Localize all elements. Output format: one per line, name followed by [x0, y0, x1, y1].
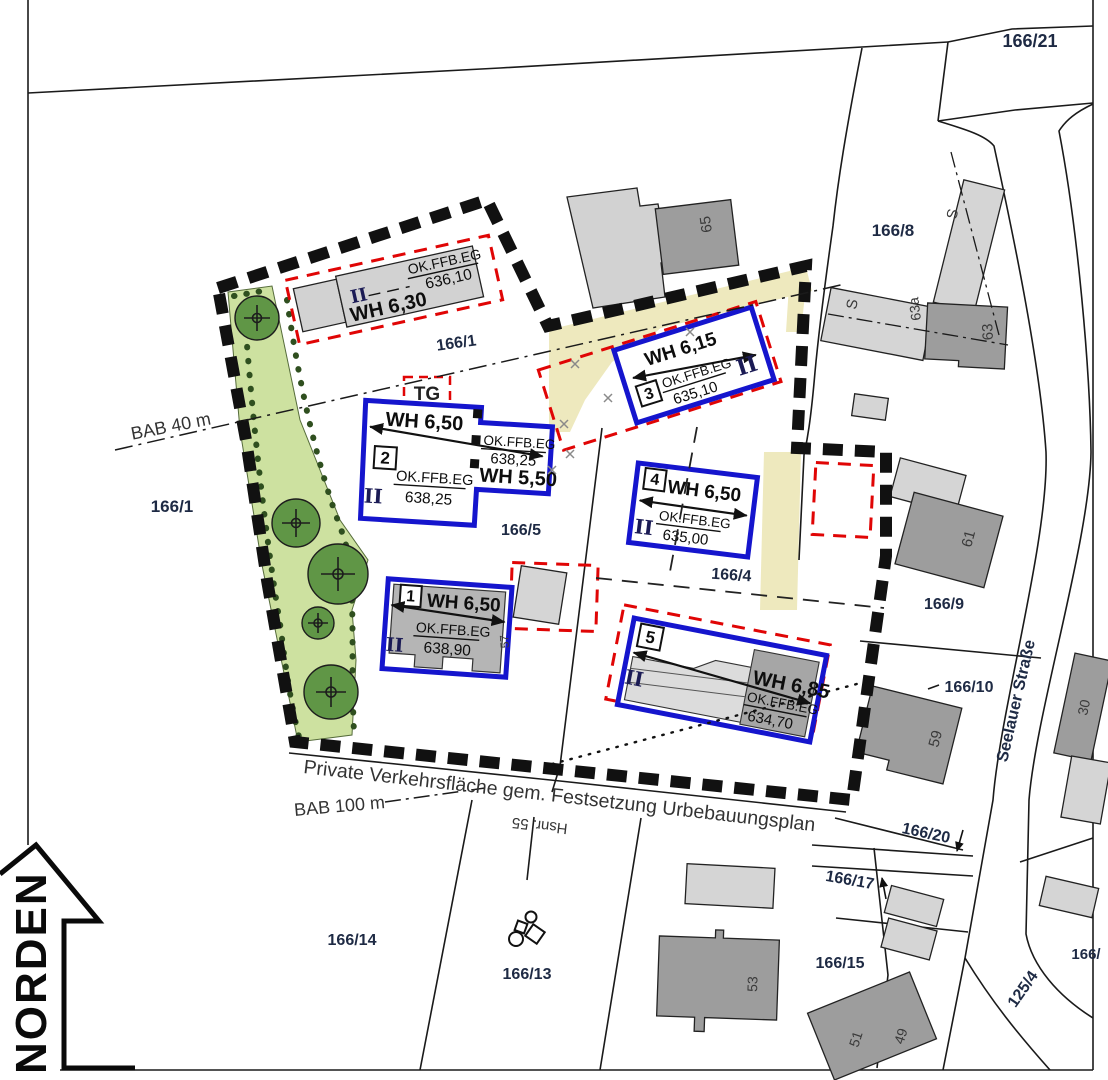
- parcel-label-166-15: 166/15: [816, 955, 865, 972]
- b1-storeys: II: [385, 634, 404, 657]
- building-right-edge: [1039, 876, 1098, 917]
- b4-storeys: II: [633, 514, 655, 540]
- arrow-166-17: [882, 878, 886, 899]
- parcel-label-166-1-inner: 166/1: [435, 332, 477, 354]
- tree-icon: [308, 544, 368, 604]
- tree-icon: [272, 499, 320, 547]
- b1-number: 1: [406, 588, 416, 606]
- site-plan-page: II OK.FFB.EG 636,10 WH 6,30 TG WH 6,50 O…: [0, 0, 1108, 1080]
- parcel-label-166-8: 166/8: [872, 221, 915, 240]
- parcel-label-166-13: 166/13: [503, 966, 552, 983]
- parcel-label-166-20: 166/20: [900, 820, 952, 847]
- small-outbuilding: [852, 394, 889, 421]
- parcel-label-166-4: 166/4: [711, 566, 752, 586]
- building-4-group: 4 WH 6,50 OK.FFB.EG 635,00 II: [629, 463, 758, 557]
- house-number-63a: 63a: [905, 296, 924, 321]
- bab40-label: BAB 40 m: [129, 409, 212, 444]
- b2-level-value: 638,25: [404, 489, 452, 509]
- parcel-label-166-17: 166/17: [824, 868, 875, 893]
- parcel-label-166-1-outer: 166/1: [151, 497, 194, 516]
- street-label-125-4: 125/4: [1005, 968, 1042, 1011]
- building-51-49: [808, 972, 937, 1080]
- building-5-group: 5 II WH 6,85 OK.FFB.EG 634,70: [617, 618, 836, 744]
- house-number-63: 63: [979, 323, 997, 341]
- small-grey-in-envelope: [513, 566, 567, 625]
- parcel-label-166-9: 166/9: [924, 596, 964, 613]
- building-1-group: 1 WH 6,50 OK.FFB.EG 638,90 II: [382, 579, 512, 677]
- parcel-label-166-cut: 166/: [1071, 946, 1101, 963]
- bab100-label: BAB 100 m: [293, 792, 385, 820]
- street-label-seelauer: Seelauer Straße: [993, 638, 1039, 764]
- building-53: [656, 928, 779, 1034]
- house-number-57: 57: [497, 634, 512, 649]
- parcel-label-166-10: 166/10: [945, 679, 994, 696]
- parcel-label-166-21: 166/21: [1002, 31, 1057, 51]
- tree-icon: [302, 607, 334, 639]
- house-number-53: 53: [744, 976, 761, 992]
- b2-number: 2: [380, 448, 391, 468]
- parcel-label-166-14: 166/14: [328, 932, 377, 949]
- well-symbol-icon: [509, 912, 545, 947]
- hsnr-55-label: Hsnr. 55: [511, 814, 568, 837]
- tree-icon: [235, 296, 279, 340]
- tree-icon: [304, 665, 358, 719]
- north-arrow: NORDEN: [0, 845, 135, 1074]
- b1-level-value: 638,90: [423, 639, 472, 659]
- parcel-label-166-5: 166/5: [501, 522, 541, 539]
- building-53-annex: [685, 864, 775, 909]
- building-61: [895, 492, 1003, 587]
- building-s-upper: [933, 180, 1004, 312]
- b2-storeys: II: [363, 484, 383, 509]
- envelope-right: [812, 463, 874, 538]
- building-30-annex: [1061, 756, 1108, 824]
- site-plan-map: II OK.FFB.EG 636,10 WH 6,30 TG WH 6,50 O…: [0, 0, 1108, 1080]
- arrow-166-20: [957, 830, 963, 851]
- north-label: NORDEN: [7, 871, 56, 1074]
- building-2-group: WH 6,50 OK.FFB.EG 638,25 WH 5,50 2 OK.FF…: [359, 400, 562, 530]
- house-number-65: 65: [697, 215, 716, 234]
